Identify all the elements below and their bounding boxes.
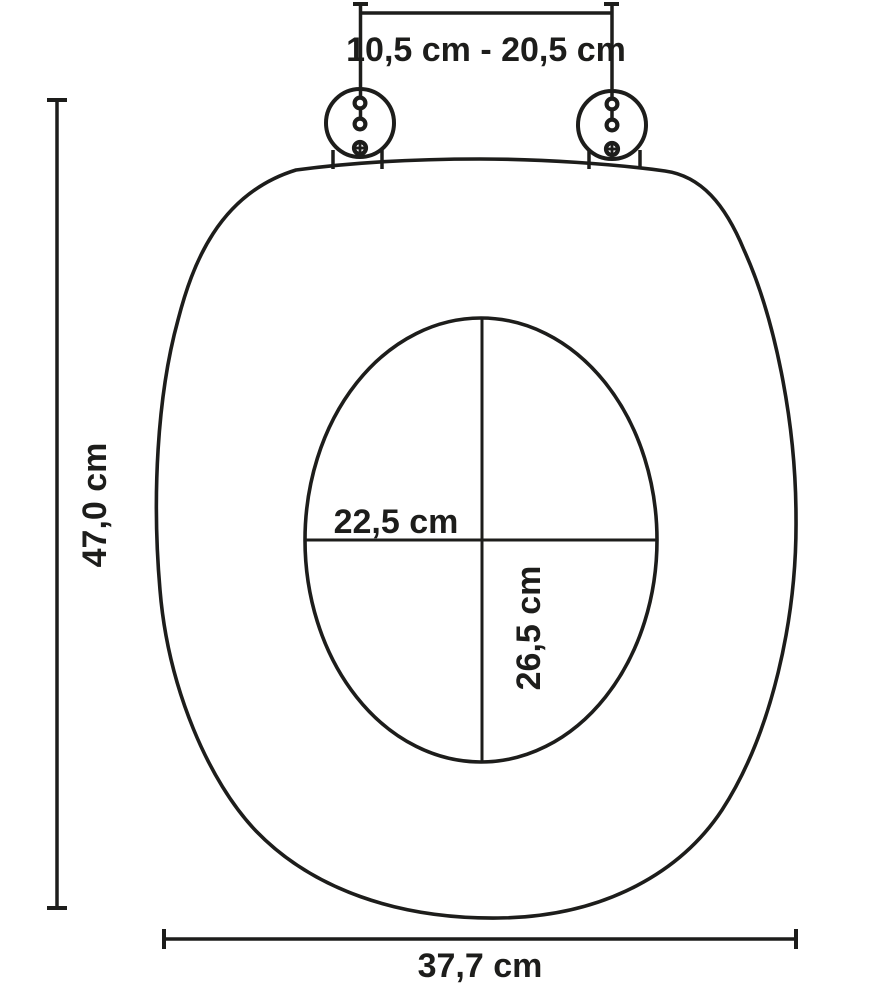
hinge-left-pin-middle: [355, 119, 366, 130]
toilet-seat-dimension-diagram: 22,5 cm 26,5 cm 10,5 cm - 20,5: [0, 0, 885, 1000]
total-length-label: 47,0 cm: [76, 443, 114, 568]
dimension-total-length: 47,0 cm: [47, 100, 114, 908]
hinge-left-pin-top: [355, 98, 366, 109]
diagram-canvas: 22,5 cm 26,5 cm 10,5 cm - 20,5: [0, 0, 885, 1000]
hinge-right-details: [605, 99, 619, 156]
inner-width-label: 22,5 cm: [334, 503, 459, 541]
hinge-right-pin-top: [607, 99, 618, 110]
dimension-total-width: 37,7 cm: [164, 929, 796, 985]
hinge-left-details: [353, 98, 367, 155]
hinge-right-pin-middle: [607, 120, 618, 131]
inner-depth-label: 26,5 cm: [510, 566, 548, 691]
hinge-distance-label: 10,5 cm - 20,5 cm: [346, 31, 626, 69]
total-width-label: 37,7 cm: [418, 947, 543, 985]
